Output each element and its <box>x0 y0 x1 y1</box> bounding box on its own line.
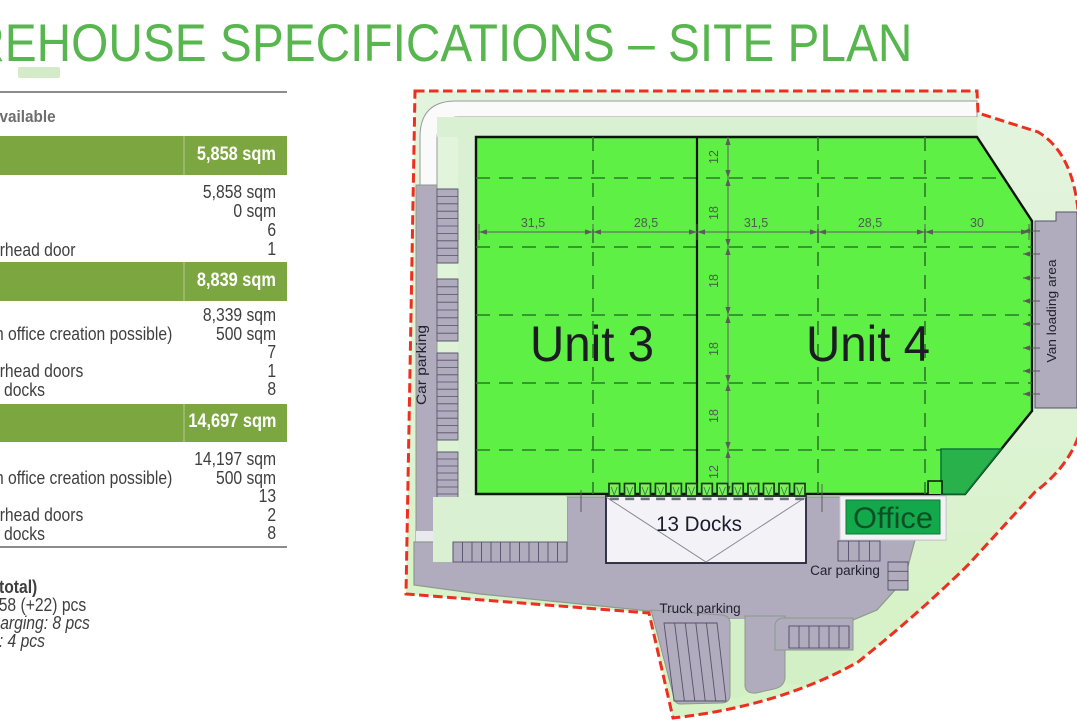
svg-text:13 Docks: 13 Docks <box>656 513 742 536</box>
svg-text:Office: Office <box>853 502 933 535</box>
svg-text:18: 18 <box>707 342 721 356</box>
svg-text:18: 18 <box>707 274 721 288</box>
svg-text:12: 12 <box>707 465 721 479</box>
svg-text:Unit 4: Unit 4 <box>806 316 930 372</box>
svg-text:18: 18 <box>707 409 721 423</box>
svg-text:Unit 3: Unit 3 <box>530 316 654 372</box>
svg-text:30: 30 <box>970 216 984 230</box>
svg-text:18: 18 <box>707 206 721 220</box>
svg-text:28,5: 28,5 <box>858 216 882 230</box>
svg-text:Truck parking: Truck parking <box>659 601 740 616</box>
svg-text:31,5: 31,5 <box>744 216 768 230</box>
svg-text:28,5: 28,5 <box>634 216 658 230</box>
svg-text:Car parking: Car parking <box>810 563 880 578</box>
svg-text:12: 12 <box>707 150 721 164</box>
svg-text:Car parking: Car parking <box>413 325 429 405</box>
svg-text:31,5: 31,5 <box>521 216 545 230</box>
svg-text:Van loading area: Van loading area <box>1044 259 1059 363</box>
